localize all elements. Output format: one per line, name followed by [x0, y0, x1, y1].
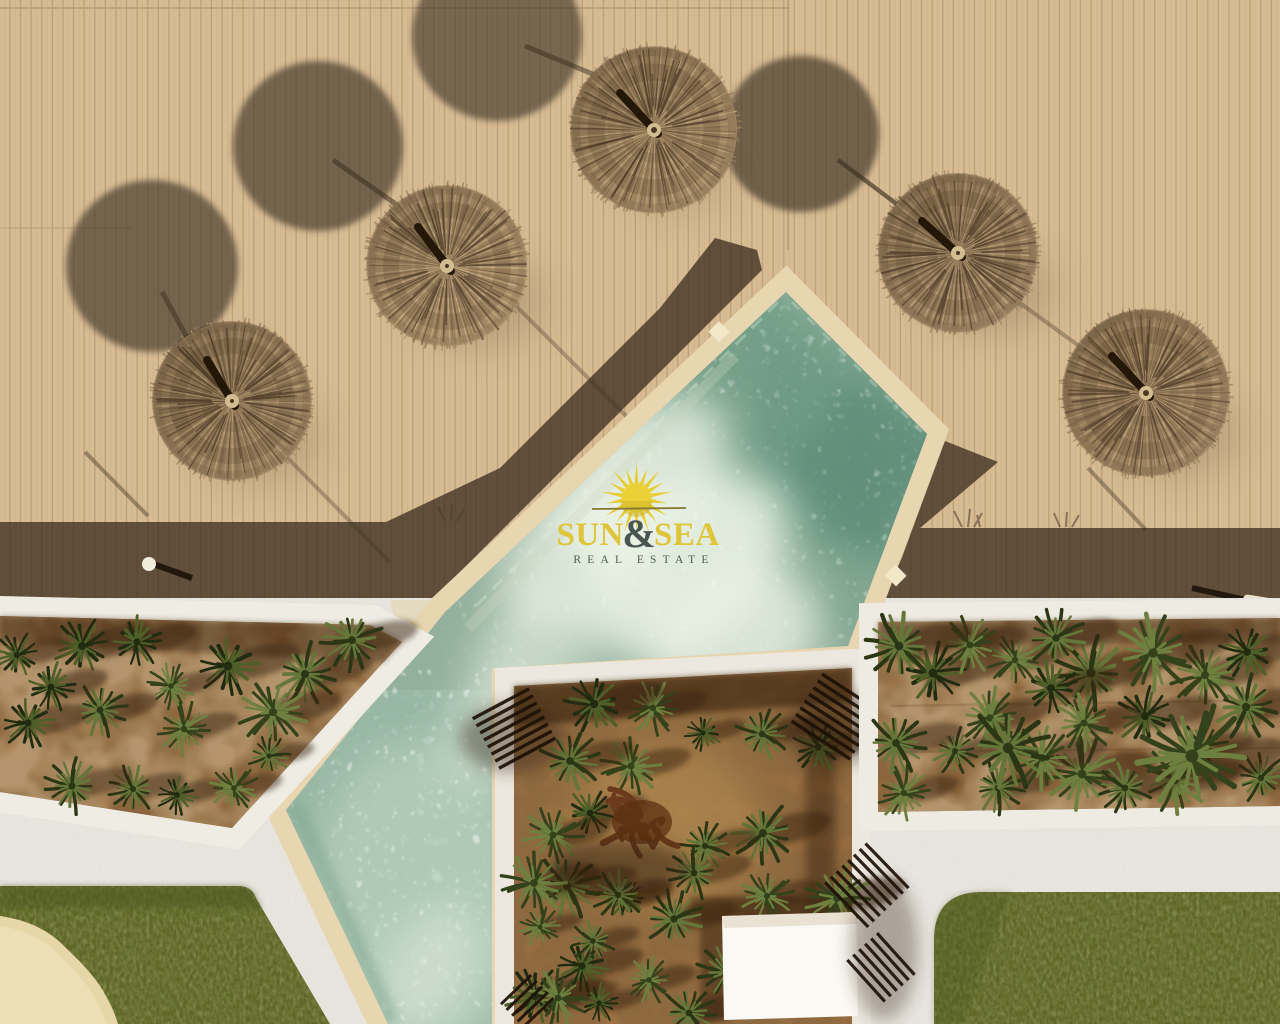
svg-text:SUN: SUN	[556, 517, 624, 553]
svg-text:&: &	[622, 511, 655, 556]
svg-text:REAL ESTATE: REAL ESTATE	[573, 554, 714, 566]
svg-text:SEA: SEA	[654, 517, 720, 553]
